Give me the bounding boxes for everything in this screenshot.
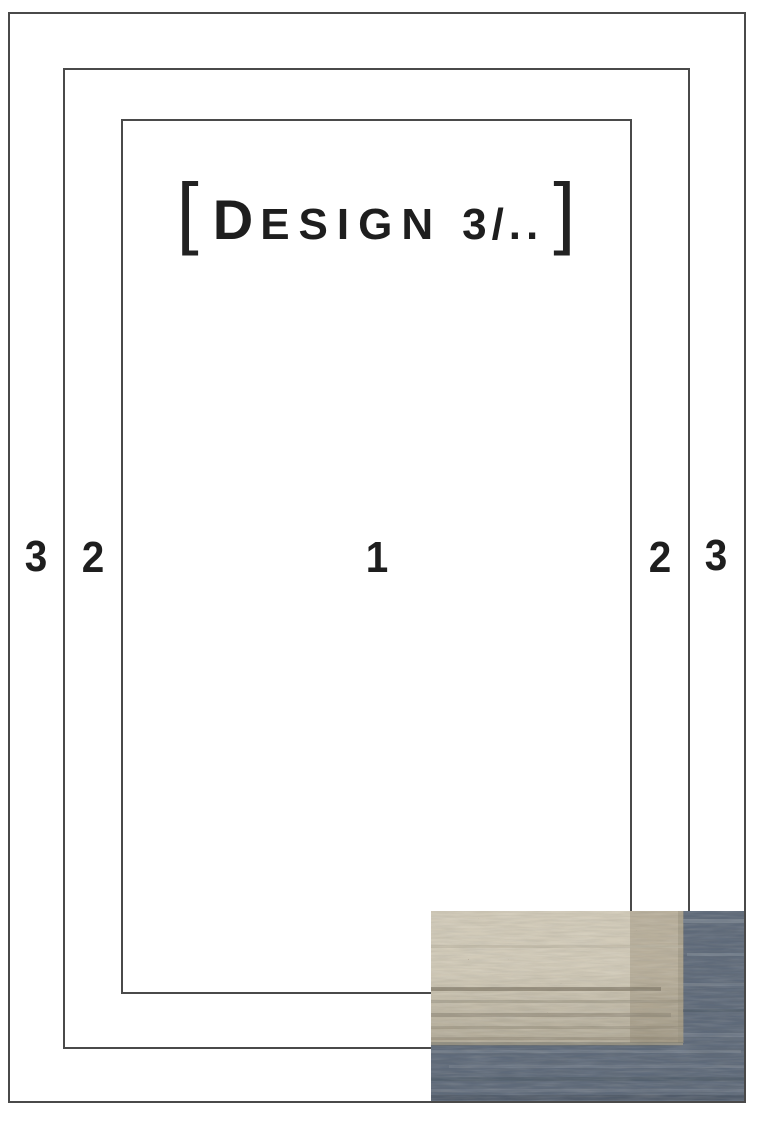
outer-border-rect [8, 12, 746, 1103]
rug-design-diagram: [ D ESIGN 3/.. ] 3 2 1 2 3 [0, 0, 768, 1121]
